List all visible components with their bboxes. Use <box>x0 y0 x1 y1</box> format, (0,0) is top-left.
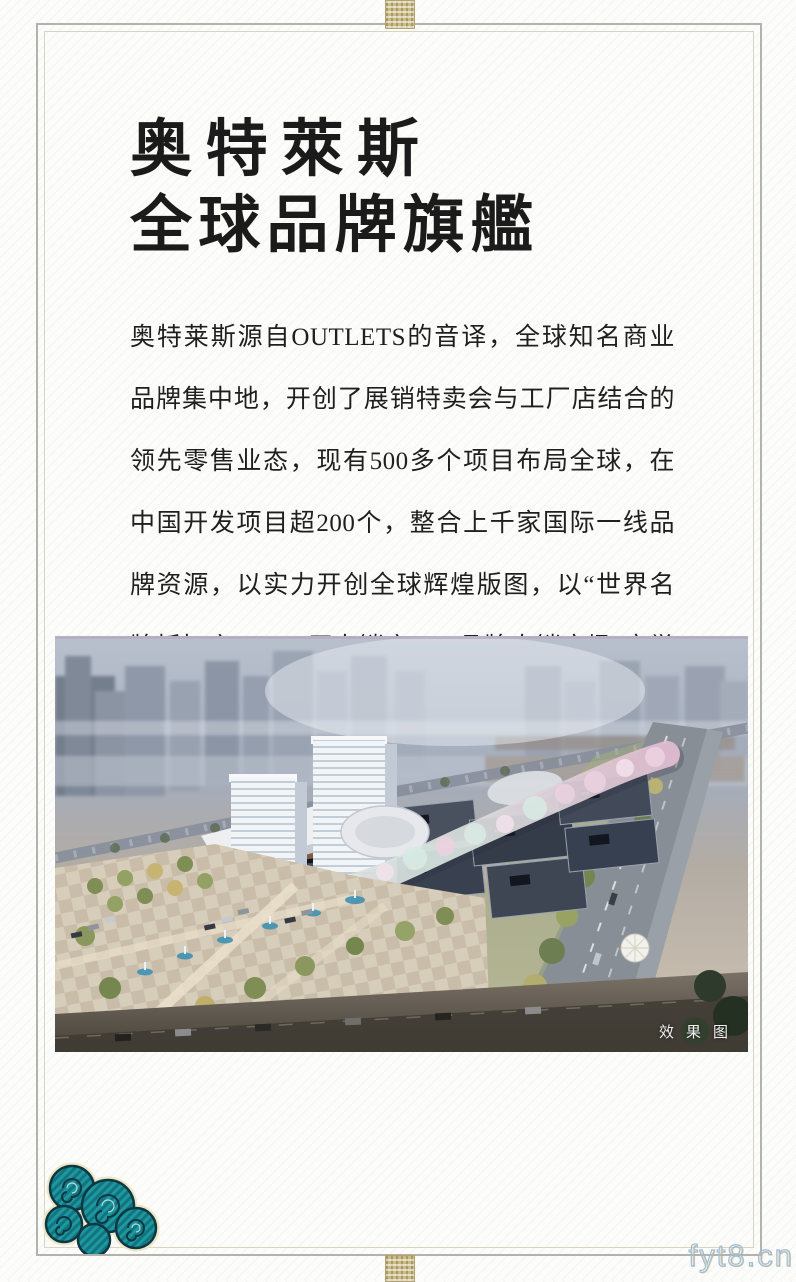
page-title: 奥特萊斯 全球品牌旗艦 <box>130 112 539 264</box>
title-line-1: 奥特萊斯 <box>130 112 539 188</box>
aerial-rendering-image: 效果图 <box>55 636 748 1052</box>
brochure-page: { "header": { "title_line1": "奥特萊斯", "ti… <box>0 0 796 1280</box>
brocade-knot-icon-top <box>385 0 415 29</box>
aerial-rendering-graphic <box>55 636 748 1052</box>
rendering-caption: 效果图 <box>659 1021 740 1042</box>
brocade-knot-icon-bottom <box>385 1255 415 1282</box>
site-watermark: fyt8.cn <box>689 1238 794 1274</box>
title-line-2: 全球品牌旗艦 <box>130 188 539 264</box>
auspicious-cloud-icon <box>36 1154 170 1254</box>
